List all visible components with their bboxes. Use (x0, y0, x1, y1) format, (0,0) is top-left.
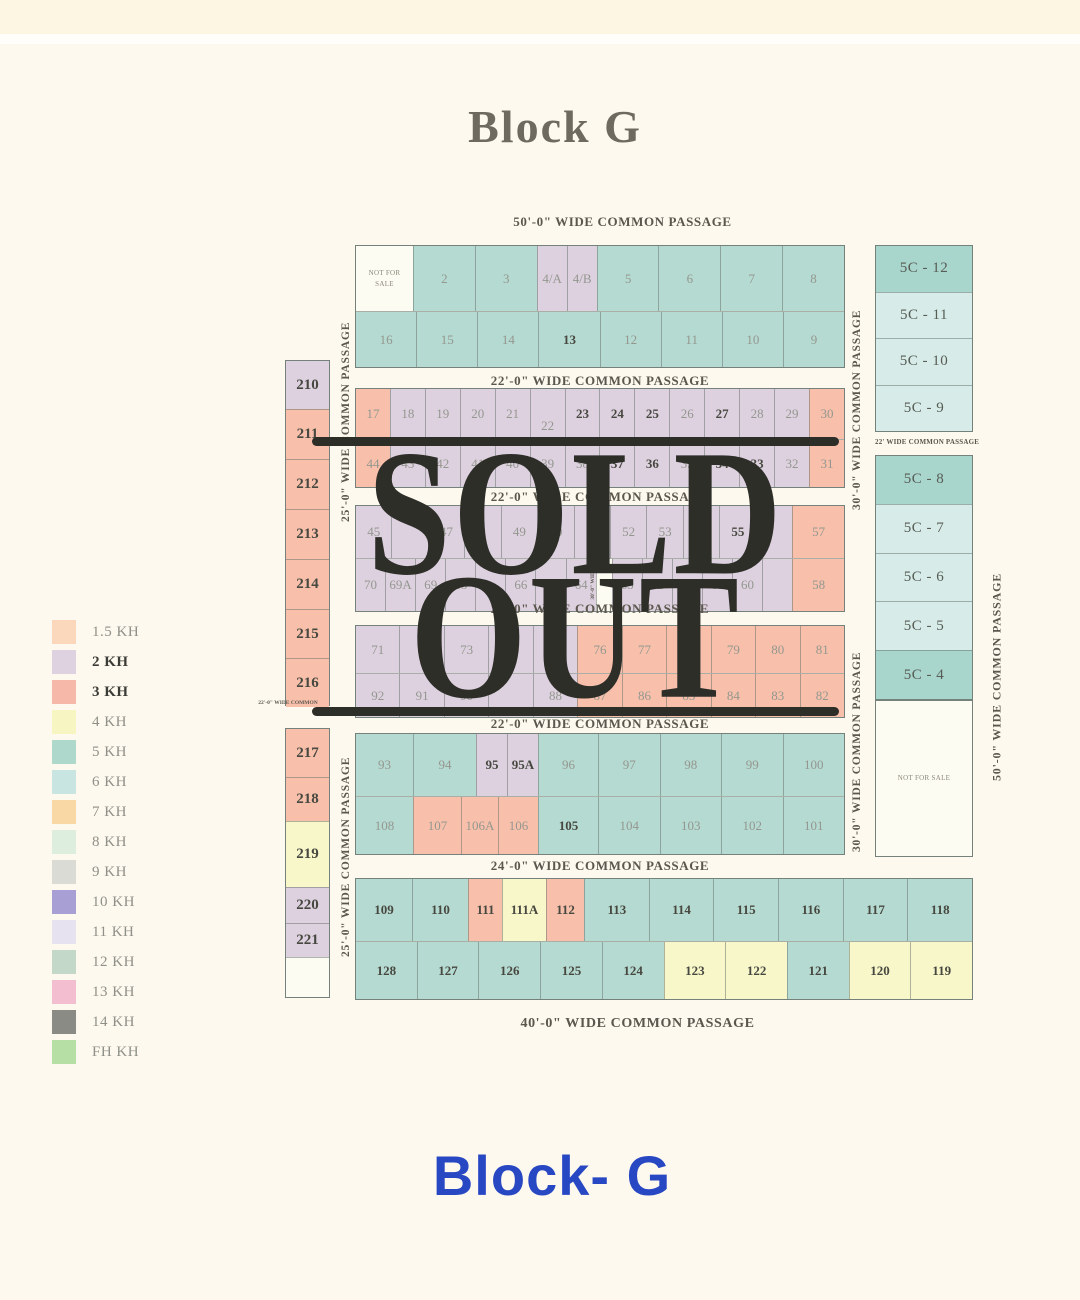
legend-swatch (52, 860, 76, 884)
plot-5c-8: 5C - 8 (876, 456, 972, 504)
plot-221: 221 (286, 923, 329, 957)
legend-item-14-kh: 14 KH (52, 1010, 139, 1034)
right-column-5c-12-9: 5C - 125C - 115C - 105C - 9 (875, 245, 973, 432)
page-title: Block G (355, 100, 755, 153)
plot-13: 13 (538, 312, 599, 367)
plot-5c-5: 5C - 5 (876, 601, 972, 650)
section-plots-109-128: 109110111111A112113114115116117118 12812… (355, 878, 973, 1000)
plot-117: 117 (843, 879, 908, 941)
plot-98: 98 (660, 734, 722, 796)
plot-3: 3 (475, 246, 537, 311)
plot-2: 2 (413, 246, 475, 311)
legend-label: 4 KH (92, 714, 127, 731)
passage-label-left-tiny: 22'-0" WIDE COMMON (258, 700, 318, 706)
legend-swatch (52, 950, 76, 974)
plot-5c-4: 5C - 4 (876, 650, 972, 699)
plot-112: 112 (546, 879, 584, 941)
legend-swatch (52, 620, 76, 644)
legend-item-2-kh: 2 KH (52, 650, 139, 674)
plot-121: 121 (787, 942, 849, 999)
plot-not-for-sale: NOT FOR SALE (876, 701, 972, 856)
plot-118: 118 (907, 879, 972, 941)
sold-out-rule-bottom (312, 707, 839, 716)
legend-item-9-kh: 9 KH (52, 860, 139, 884)
right-column-5c-8-4: 5C - 85C - 75C - 65C - 55C - 4 (875, 455, 973, 700)
section-plots-1-16: NOT FOR SALE234/A4/B5678 161514131211109 (355, 245, 845, 368)
plot-97: 97 (598, 734, 660, 796)
plot-93: 93 (356, 734, 413, 796)
plot-100: 100 (783, 734, 845, 796)
plot-5c-12: 5C - 12 (876, 246, 972, 292)
plot-109: 109 (356, 879, 412, 941)
legend-item-6-kh: 6 KH (52, 770, 139, 794)
legend-label: 8 KH (92, 834, 127, 851)
sold-out-text: SOLDOUT (312, 452, 839, 699)
legend-label: 12 KH (92, 954, 135, 971)
plot-122: 122 (725, 942, 787, 999)
plot-107: 107 (413, 797, 461, 854)
plot-111: 111 (468, 879, 502, 941)
right-not-for-sale: NOT FOR SALE (875, 700, 973, 857)
row-plots-108-101: 108107106A106105104103102101 (356, 796, 844, 854)
plot-8: 8 (782, 246, 844, 311)
plot-108: 108 (356, 797, 413, 854)
plot-5: 5 (597, 246, 659, 311)
legend-item-3-kh: 3 KH (52, 680, 139, 704)
row-plots-109-118: 109110111111A112113114115116117118 (356, 879, 972, 941)
plot-12: 12 (600, 312, 661, 367)
legend-swatch (52, 830, 76, 854)
legend-label: 9 KH (92, 864, 127, 881)
plot-4-a: 4/A (537, 246, 567, 311)
plot-219: 219 (286, 821, 329, 887)
left-column-217-221: 217218219220221 (285, 728, 330, 998)
passage-label-6: 40'-0" WIDE COMMON PASSAGE (355, 1016, 920, 1032)
passage-label-top: 50'-0" WIDE COMMON PASSAGE (355, 214, 890, 230)
legend-swatch (52, 1040, 76, 1064)
plot-6: 6 (658, 246, 720, 311)
legend-item-fh-kh: FH KH (52, 1040, 139, 1064)
plot-95: 95 (476, 734, 507, 796)
plot-5c-10: 5C - 10 (876, 338, 972, 385)
plot-5c-6: 5C - 6 (876, 553, 972, 602)
legend-item-8-kh: 8 KH (52, 830, 139, 854)
passage-label-rc: 22' WIDE COMMON PASSAGE (875, 438, 973, 446)
plot-102: 102 (721, 797, 783, 854)
plot-106a: 106A (461, 797, 498, 854)
plot-210: 210 (286, 361, 329, 409)
section-plots-93-108: 93949595A96979899100 108107106A106105104… (355, 733, 845, 855)
plot-116: 116 (778, 879, 843, 941)
legend-label: 10 KH (92, 894, 135, 911)
plot-14: 14 (477, 312, 538, 367)
plot-113: 113 (584, 879, 649, 941)
vertical-passage-30-bottom: 30'-0" WIDE COMMON PASSAGE (850, 652, 864, 852)
plot-217: 217 (286, 729, 329, 777)
legend-swatch (52, 980, 76, 1004)
plot-96: 96 (538, 734, 598, 796)
plot-119: 119 (910, 942, 972, 999)
legend-item-5-kh: 5 KH (52, 740, 139, 764)
legend-swatch (52, 800, 76, 824)
plot-94: 94 (413, 734, 476, 796)
legend-swatch (52, 1010, 76, 1034)
legend-item-11-kh: 11 KH (52, 920, 139, 944)
plot-9: 9 (783, 312, 844, 367)
legend-label: 7 KH (92, 804, 127, 821)
plot-218: 218 (286, 777, 329, 821)
legend-label: 13 KH (92, 984, 135, 1001)
legend-label: 3 KH (92, 684, 129, 701)
plot-220: 220 (286, 887, 329, 923)
plot-127: 127 (417, 942, 479, 999)
plot-10: 10 (722, 312, 783, 367)
legend: 1.5 KH2 KH3 KH4 KH5 KH6 KH7 KH8 KH9 KH10… (52, 620, 139, 1070)
legend-item-10-kh: 10 KH (52, 890, 139, 914)
legend-swatch (52, 740, 76, 764)
plot-5c-7: 5C - 7 (876, 504, 972, 553)
plot-128: 128 (356, 942, 417, 999)
plot-101: 101 (783, 797, 845, 854)
plot-104: 104 (598, 797, 660, 854)
top-band (0, 0, 1080, 34)
vertical-passage-30-top: 30'-0" WIDE COMMON PASSAGE (850, 320, 864, 510)
legend-label: 14 KH (92, 1014, 135, 1031)
plot-7: 7 (720, 246, 782, 311)
plot-114: 114 (649, 879, 714, 941)
legend-swatch (52, 710, 76, 734)
row-plots-16-9: 161514131211109 (356, 311, 844, 367)
legend-swatch (52, 920, 76, 944)
vertical-passage-50-right: 50'-0" WIDE COMMON PASSAGE (990, 560, 1004, 795)
plot-106: 106 (498, 797, 538, 854)
legend-label: 1.5 KH (92, 624, 139, 641)
passage-label-5: 24'-0" WIDE COMMON PASSAGE (355, 858, 845, 874)
legend-label: 5 KH (92, 744, 127, 761)
plot-11: 11 (661, 312, 722, 367)
plot-115: 115 (713, 879, 778, 941)
plot-126: 126 (478, 942, 540, 999)
vertical-passage-25-bottom: 25'-0" WIDE COMMON PASSAGE (339, 767, 353, 957)
legend-item-13-kh: 13 KH (52, 980, 139, 1004)
legend-label: 11 KH (92, 924, 134, 941)
legend-swatch (52, 650, 76, 674)
plot-110: 110 (412, 879, 468, 941)
plot-16: 16 (356, 312, 416, 367)
row-plots-128-119: 128127126125124123122121120119 (356, 941, 972, 999)
plot-empty (286, 957, 329, 997)
legend-label: 2 KH (92, 654, 129, 671)
plot-123: 123 (664, 942, 726, 999)
plot-15: 15 (416, 312, 477, 367)
legend-swatch (52, 770, 76, 794)
plot-125: 125 (540, 942, 602, 999)
legend-item-4-kh: 4 KH (52, 710, 139, 734)
plot-124: 124 (602, 942, 664, 999)
plot-111a: 111A (502, 879, 546, 941)
plot-5c-9: 5C - 9 (876, 385, 972, 432)
plot-30: 30 (809, 389, 844, 439)
plot-4-b: 4/B (567, 246, 597, 311)
plot-not-for-sale: NOT FOR SALE (356, 246, 413, 311)
footer-block-label: Block- G (0, 1143, 1080, 1208)
plot-99: 99 (721, 734, 783, 796)
legend-item-1.5-kh: 1.5 KH (52, 620, 139, 644)
top-divider (0, 34, 1080, 44)
plot-105: 105 (538, 797, 598, 854)
legend-label: FH KH (92, 1044, 139, 1061)
plot-103: 103 (660, 797, 722, 854)
legend-item-12-kh: 12 KH (52, 950, 139, 974)
legend-label: 6 KH (92, 774, 127, 791)
legend-swatch (52, 680, 76, 704)
plot-5c-11: 5C - 11 (876, 292, 972, 339)
row-plots-2-8: NOT FOR SALE234/A4/B5678 (356, 246, 844, 311)
passage-label-1: 22'-0" WIDE COMMON PASSAGE (355, 373, 845, 389)
legend-swatch (52, 890, 76, 914)
row-plots-93-100: 93949595A96979899100 (356, 734, 844, 796)
plot-95a: 95A (507, 734, 538, 796)
legend-item-7-kh: 7 KH (52, 800, 139, 824)
plot-120: 120 (849, 942, 911, 999)
